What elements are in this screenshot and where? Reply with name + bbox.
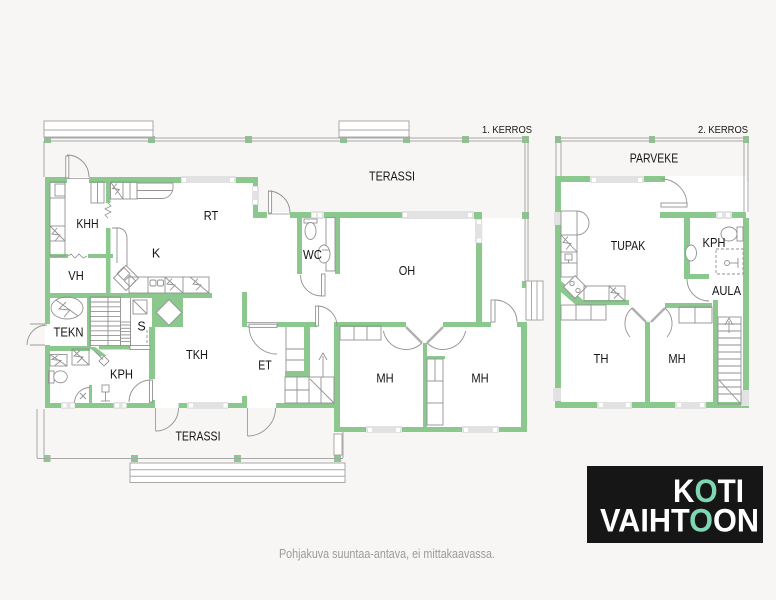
svg-text:TERASSI: TERASSI	[369, 170, 415, 184]
svg-text:KPH: KPH	[110, 368, 133, 382]
svg-text:K: K	[152, 247, 161, 261]
svg-text:TERASSI: TERASSI	[176, 430, 221, 444]
svg-text:Pohjakuva suuntaa-antava, ei m: Pohjakuva suuntaa-antava, ei mittakaavas…	[279, 546, 495, 561]
svg-text:MH: MH	[376, 372, 393, 386]
svg-text:TEKN: TEKN	[54, 326, 84, 340]
svg-text:KPH: KPH	[703, 236, 726, 250]
svg-text:MH: MH	[668, 352, 685, 366]
svg-text:ET: ET	[258, 359, 272, 373]
svg-text:MH: MH	[471, 372, 488, 386]
svg-text:PARVEKE: PARVEKE	[630, 152, 679, 166]
svg-text:TH: TH	[594, 352, 609, 366]
svg-text:TUPAK: TUPAK	[611, 239, 646, 253]
svg-text:VH: VH	[68, 269, 84, 283]
svg-text:RT: RT	[204, 209, 219, 223]
svg-text:2. KERROS: 2. KERROS	[698, 125, 748, 136]
svg-text:S: S	[137, 320, 145, 334]
svg-text:WC: WC	[303, 248, 322, 262]
svg-text:VAIHTOON: VAIHTOON	[600, 503, 759, 539]
svg-text:AULA: AULA	[712, 284, 742, 298]
svg-text:OH: OH	[399, 264, 416, 278]
svg-text:1. KERROS: 1. KERROS	[482, 125, 532, 136]
svg-text:TKH: TKH	[186, 348, 208, 362]
svg-text:KHH: KHH	[76, 217, 98, 231]
